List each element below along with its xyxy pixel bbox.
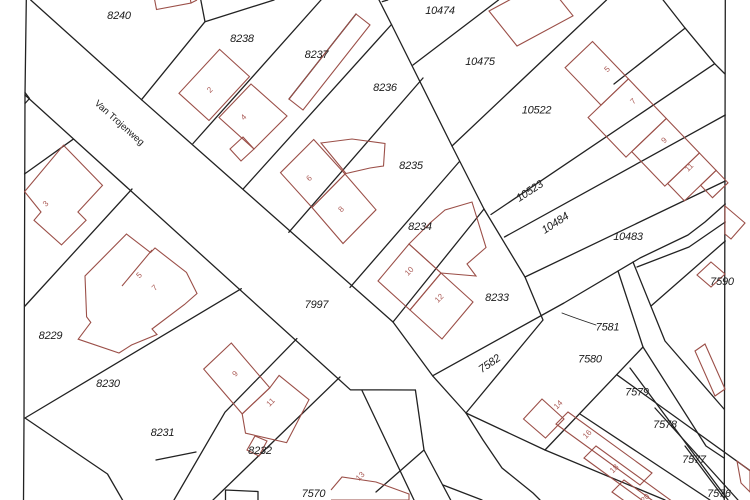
svg-text:8237: 8237: [305, 49, 330, 61]
svg-text:7570: 7570: [302, 488, 327, 500]
svg-text:Van Trojenweg: Van Trojenweg: [92, 98, 146, 148]
svg-text:8231: 8231: [151, 427, 175, 439]
svg-text:7590: 7590: [710, 276, 735, 288]
svg-text:10522: 10522: [522, 105, 552, 117]
svg-text:7581: 7581: [596, 322, 620, 334]
svg-text:10475: 10475: [465, 56, 496, 68]
svg-text:10523: 10523: [514, 178, 546, 205]
svg-text:8232: 8232: [248, 445, 272, 457]
svg-text:8: 8: [336, 204, 346, 214]
svg-text:10474: 10474: [425, 5, 455, 17]
svg-text:8235: 8235: [399, 160, 424, 172]
svg-text:5: 5: [134, 270, 144, 280]
svg-text:7580: 7580: [578, 354, 603, 366]
svg-text:8229: 8229: [39, 330, 63, 342]
svg-text:7997: 7997: [305, 299, 330, 311]
svg-text:3: 3: [41, 199, 51, 209]
svg-text:9: 9: [659, 135, 669, 145]
svg-text:7: 7: [150, 283, 160, 293]
svg-text:12: 12: [433, 292, 446, 305]
svg-text:7576: 7576: [707, 488, 732, 500]
svg-text:7: 7: [628, 96, 638, 106]
svg-text:8238: 8238: [230, 33, 255, 45]
svg-text:7577: 7577: [682, 454, 707, 466]
svg-text:10483: 10483: [613, 231, 644, 243]
svg-text:5: 5: [602, 64, 612, 74]
svg-text:8240: 8240: [107, 10, 132, 22]
svg-text:6: 6: [304, 173, 314, 183]
svg-text:8236: 8236: [373, 82, 398, 94]
svg-text:7579: 7579: [625, 387, 649, 399]
svg-text:11: 11: [683, 161, 696, 174]
svg-text:8233: 8233: [485, 292, 510, 304]
svg-text:8230: 8230: [96, 378, 121, 390]
svg-text:7578: 7578: [653, 419, 678, 431]
svg-text:8234: 8234: [408, 221, 432, 233]
svg-text:11: 11: [265, 396, 278, 409]
svg-text:2: 2: [205, 85, 215, 95]
svg-text:9: 9: [230, 369, 240, 379]
svg-text:10: 10: [403, 265, 416, 278]
svg-text:18: 18: [608, 462, 621, 475]
svg-text:4: 4: [239, 112, 249, 122]
